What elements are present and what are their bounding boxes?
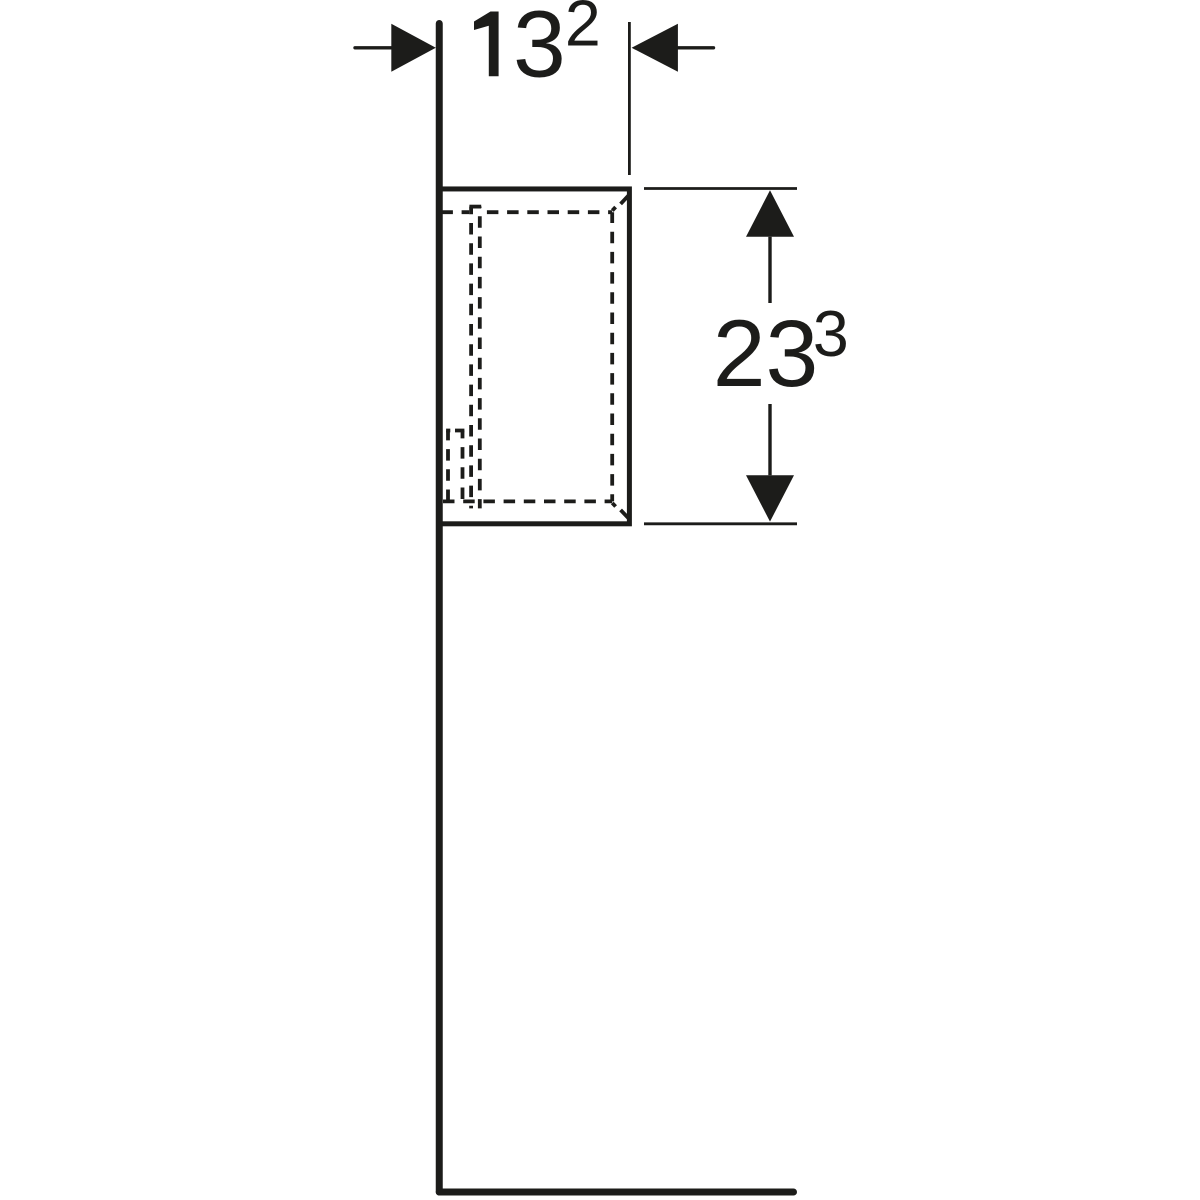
svg-text:23: 23 (713, 301, 819, 407)
svg-text:2: 2 (565, 0, 601, 60)
svg-text:3: 3 (813, 298, 849, 370)
svg-text:3: 3 (513, 0, 566, 97)
